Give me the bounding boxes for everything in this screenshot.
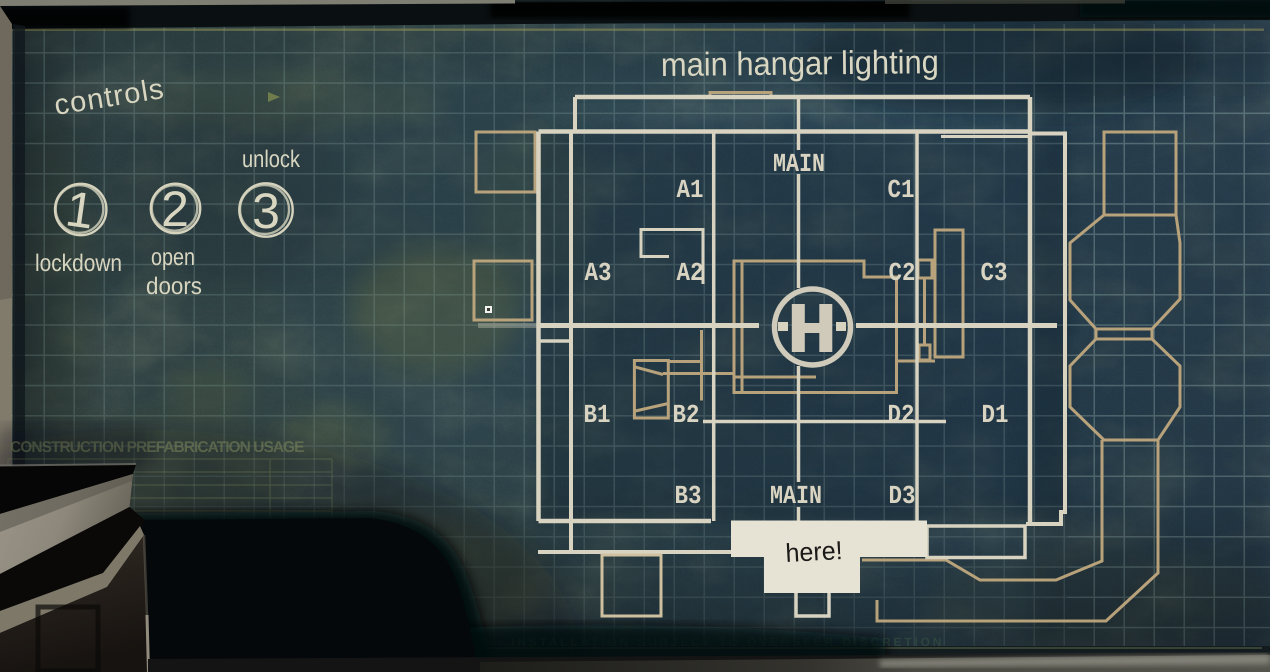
svg-text:here!: here! [785, 535, 843, 568]
svg-text:main hangar lighting: main hangar lighting [661, 43, 939, 83]
svg-text:C3: C3 [981, 258, 1008, 288]
svg-text:MAIN: MAIN [770, 481, 822, 511]
svg-text:MAIN: MAIN [773, 149, 825, 179]
svg-text:D3: D3 [889, 481, 916, 511]
svg-text:3: 3 [252, 183, 280, 239]
svg-text:2: 2 [161, 181, 189, 237]
svg-text:lockdown: lockdown [35, 250, 122, 277]
svg-text:A1: A1 [677, 175, 704, 205]
svg-text:B3: B3 [675, 481, 702, 511]
svg-text:C1: C1 [888, 175, 915, 205]
svg-text:D2: D2 [888, 400, 915, 430]
svg-text:B2: B2 [673, 400, 700, 430]
svg-text:unlock: unlock [242, 146, 301, 173]
svg-text:B1: B1 [584, 400, 611, 430]
svg-text:D1: D1 [982, 400, 1009, 430]
svg-text:open: open [151, 244, 195, 271]
svg-text:C2: C2 [889, 258, 916, 288]
svg-text:A3: A3 [585, 258, 612, 288]
svg-text:A2: A2 [677, 258, 704, 288]
svg-text:doors: doors [146, 273, 202, 300]
